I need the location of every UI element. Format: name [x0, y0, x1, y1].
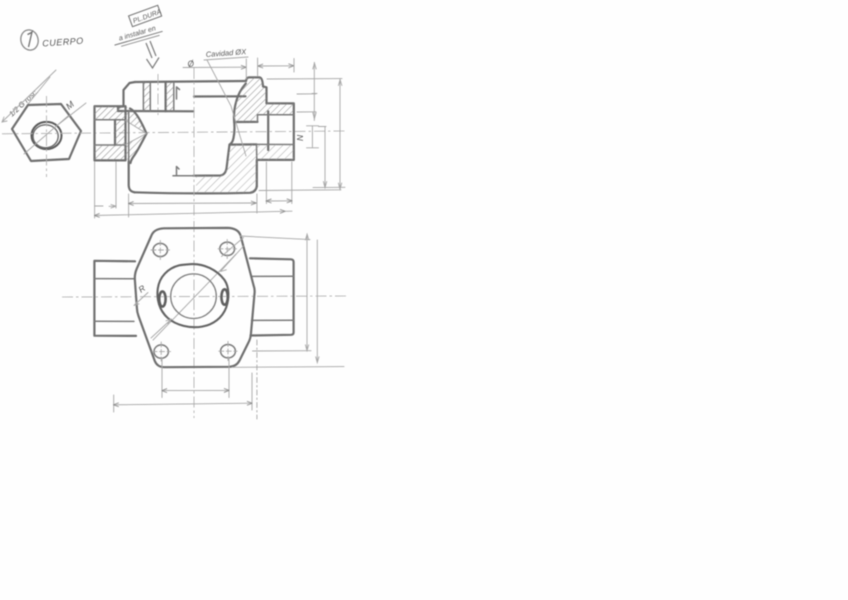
svg-text:CUERPO: CUERPO: [42, 36, 84, 49]
svg-text:1/2 G rosc.: 1/2 G rosc.: [7, 87, 40, 119]
svg-text:R: R: [136, 283, 147, 295]
svg-text:a instalar en: a instalar en: [118, 25, 157, 42]
svg-text:N: N: [295, 134, 305, 141]
